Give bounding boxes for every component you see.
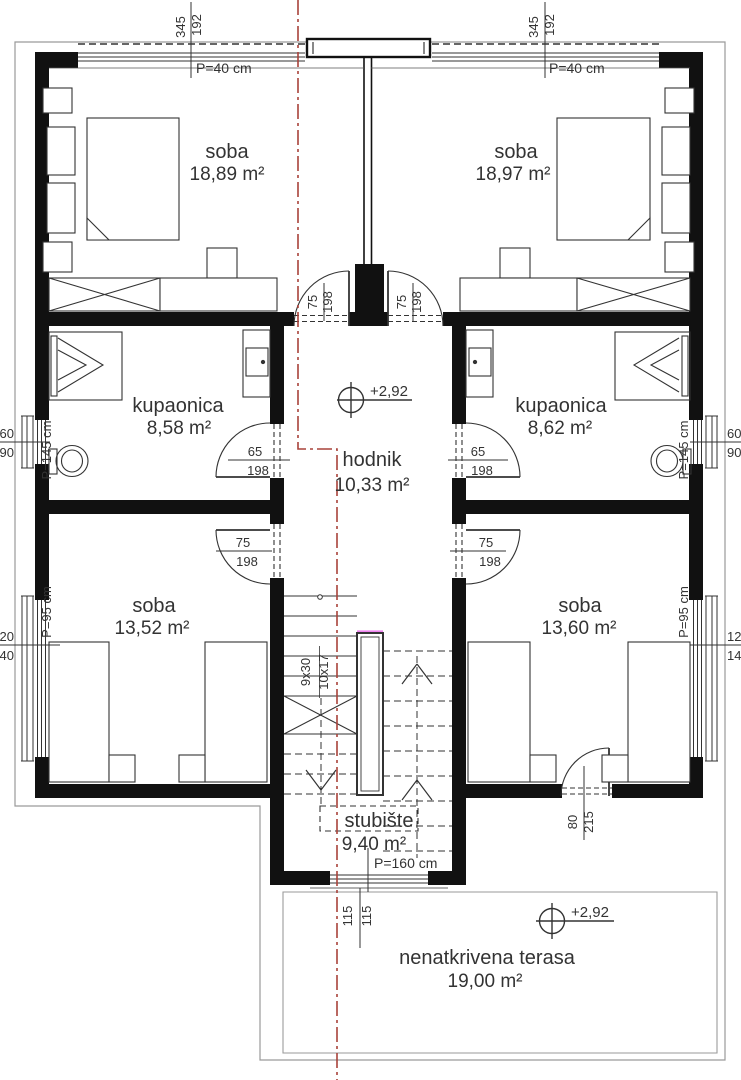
dim-win-stair-a: 115 <box>340 906 355 927</box>
room-label-soba-br: soba <box>558 595 602 617</box>
single-bed <box>49 642 109 782</box>
double-bed <box>87 118 179 240</box>
dim-door-room-left-h: 198 <box>236 554 258 569</box>
dim-win-room-right-w: 120 <box>727 629 741 644</box>
pillow <box>47 127 75 175</box>
room-area-stubiste: 9,40 m² <box>342 834 406 855</box>
window-label-top-left: P=40 cm <box>196 60 252 76</box>
party-wall <box>307 39 430 264</box>
dim-win-room-right-h: 140 <box>727 648 741 663</box>
dim-door-top-left-h: 198 <box>320 291 335 313</box>
pillow <box>662 183 690 233</box>
nightstand <box>665 242 694 272</box>
vanity <box>466 330 493 397</box>
dim-door-top-right-h: 198 <box>409 291 424 313</box>
dim-top-right-w: 345 <box>526 16 541 38</box>
window-room-right <box>694 596 719 761</box>
dim-door-top-right-w: 75 <box>394 295 409 309</box>
window-label-room-right: P=95 cm <box>676 586 691 638</box>
single-bed <box>628 642 690 782</box>
dim-stair-flight-right: 10x17 <box>316 654 331 689</box>
window-label-bath-left: P=145 cm <box>39 421 54 480</box>
stair-core-wall <box>357 632 383 796</box>
nightstand <box>43 242 72 272</box>
dim-door-terrace-h: 215 <box>581 811 596 833</box>
room-label-soba-bl: soba <box>132 595 176 617</box>
room-area-hodnik: 10,33 m² <box>335 475 410 496</box>
room-label-soba-tr: soba <box>494 141 538 163</box>
dim-win-stair-b: 115 <box>359 906 374 927</box>
room-label-terasa: nenatkrivena terasa <box>399 947 576 969</box>
dim-door-bath-left-w: 65 <box>248 444 262 459</box>
window-label-bath-right: P=145 cm <box>676 421 691 480</box>
floor-plan-page: soba 18,89 m² soba 18,97 m² kupaonica 8,… <box>0 0 741 1080</box>
room-area-soba-br: 13,60 m² <box>542 618 617 639</box>
dim-door-top-left-w: 75 <box>305 295 320 309</box>
sink <box>469 348 491 376</box>
box <box>207 248 237 278</box>
dim-top-left-o: 192 <box>189 14 204 36</box>
room-label-kupaonica-l: kupaonica <box>132 395 224 417</box>
room-area-kupaonica-l: 8,58 m² <box>147 418 211 439</box>
window-label-room-left: P=95 cm <box>39 586 54 638</box>
level-hodnik: +2,92 <box>370 383 408 400</box>
dim-stair-flight-left: 9x30 <box>298 658 313 686</box>
dresser <box>460 278 577 311</box>
window-label-stair: P=160 cm <box>374 855 437 871</box>
side-table <box>179 755 205 782</box>
dim-top-right-o: 192 <box>542 14 557 36</box>
side-table <box>109 755 135 782</box>
side-table <box>530 755 556 782</box>
dim-door-bath-right-w: 65 <box>471 444 485 459</box>
furniture-bedroom-bl <box>49 642 267 782</box>
single-bed <box>205 642 267 782</box>
dim-door-terrace-w: 80 <box>565 815 580 829</box>
dim-door-bath-left-h: 198 <box>247 463 269 478</box>
red-axis-line <box>298 0 337 1080</box>
room-label-soba-tl: soba <box>205 141 249 163</box>
shower-grille <box>682 336 688 396</box>
shower <box>49 332 122 400</box>
dim-win-bath-left-h: 90 <box>0 445 14 460</box>
dresser <box>160 278 277 311</box>
dim-door-bath-right-h: 198 <box>471 463 493 478</box>
nightstand <box>665 88 694 113</box>
window-label-top-right: P=40 cm <box>549 60 605 76</box>
nightstand <box>43 88 72 113</box>
single-bed <box>468 642 530 782</box>
furniture-bedroom-tr <box>460 88 694 311</box>
furniture-bedroom-tl <box>43 88 277 311</box>
shower-grille <box>51 336 57 396</box>
room-area-kupaonica-r: 8,62 m² <box>528 418 592 439</box>
dim-win-bath-left-w: 60 <box>0 426 14 441</box>
room-label-hodnik: hodnik <box>343 449 403 471</box>
dim-win-room-left-w: 120 <box>0 629 14 644</box>
furniture-bedroom-br <box>468 642 690 782</box>
dim-door-room-right-w: 75 <box>479 535 493 550</box>
floor-plan-svg: soba 18,89 m² soba 18,97 m² kupaonica 8,… <box>0 0 741 1080</box>
dim-win-bath-right-h: 90 <box>727 445 741 460</box>
pillow <box>662 127 690 175</box>
room-area-soba-bl: 13,52 m² <box>115 618 190 639</box>
room-area-soba-tl: 18,89 m² <box>190 164 265 185</box>
vanity <box>243 330 270 397</box>
pillow <box>47 183 75 233</box>
room-area-terasa: 19,00 m² <box>448 971 523 992</box>
dim-door-room-right-h: 198 <box>479 554 501 569</box>
dim-door-room-left-w: 75 <box>236 535 250 550</box>
room-label-stubiste: stubište <box>345 810 414 832</box>
side-table <box>602 755 628 782</box>
dim-win-bath-right-w: 60 <box>727 426 741 441</box>
dim-top-left-w: 345 <box>173 16 188 38</box>
room-area-soba-tr: 18,97 m² <box>476 164 551 185</box>
stair-left-flight <box>284 595 357 804</box>
window-stair <box>310 875 448 888</box>
dim-win-room-left-h: 140 <box>0 648 14 663</box>
double-bed <box>557 118 650 240</box>
room-label-kupaonica-r: kupaonica <box>515 395 607 417</box>
level-terrace: +2,92 <box>571 904 609 921</box>
box <box>500 248 530 278</box>
